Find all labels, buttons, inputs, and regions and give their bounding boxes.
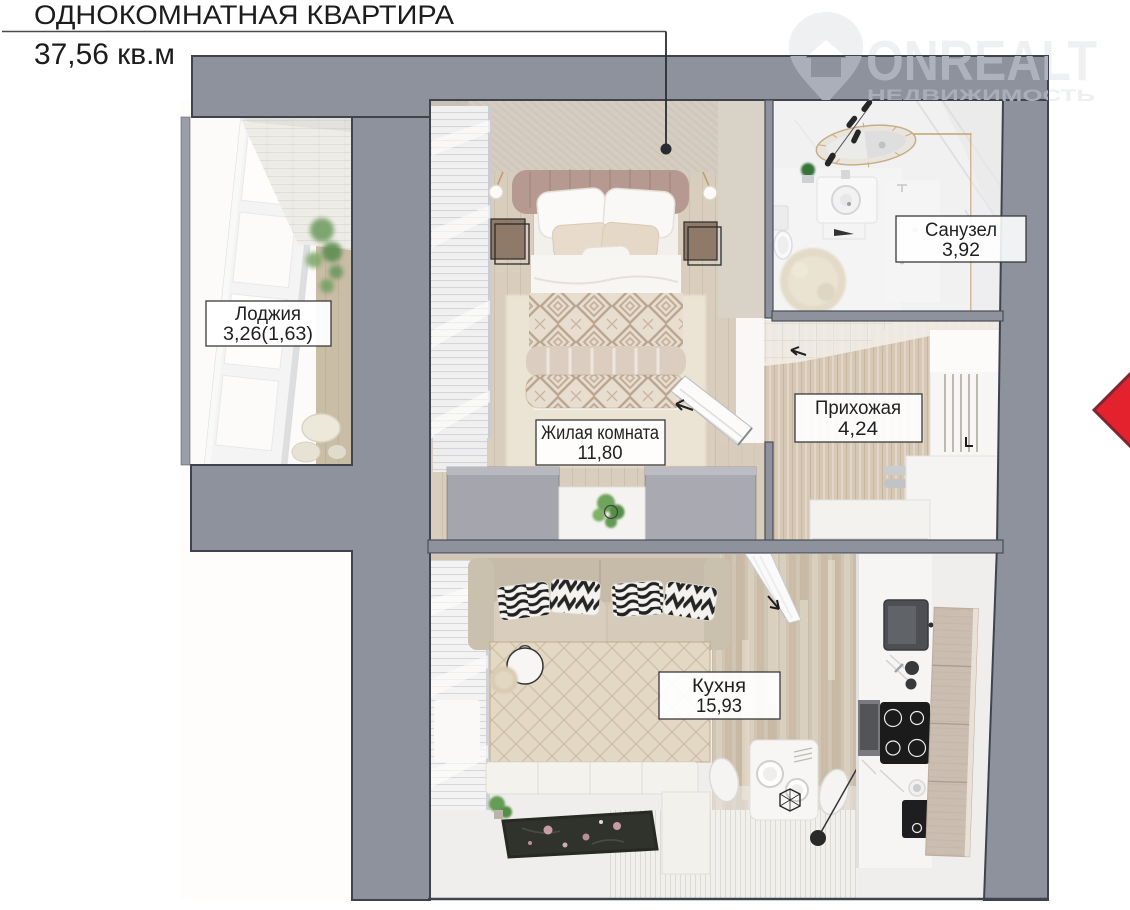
svg-text:Прихожая: Прихожая [815,398,901,419]
svg-text:11,80: 11,80 [578,443,623,464]
svg-text:Санузел: Санузел [925,220,997,241]
svg-text:Кухня: Кухня [692,676,746,697]
svg-text:3,26(1,63): 3,26(1,63) [223,324,313,345]
svg-text:ОДНОКОМНАТНАЯ КВАРТИРА: ОДНОКОМНАТНАЯ КВАРТИРА [34,0,454,30]
svg-text:3,92: 3,92 [942,240,980,261]
svg-text:Лоджия: Лоджия [235,304,301,325]
svg-text:4,24: 4,24 [838,419,878,440]
svg-text:15,93: 15,93 [696,696,742,717]
svg-text:37,56 кв.м: 37,56 кв.м [34,38,175,71]
svg-text:Жилая комната: Жилая комната [541,423,659,444]
